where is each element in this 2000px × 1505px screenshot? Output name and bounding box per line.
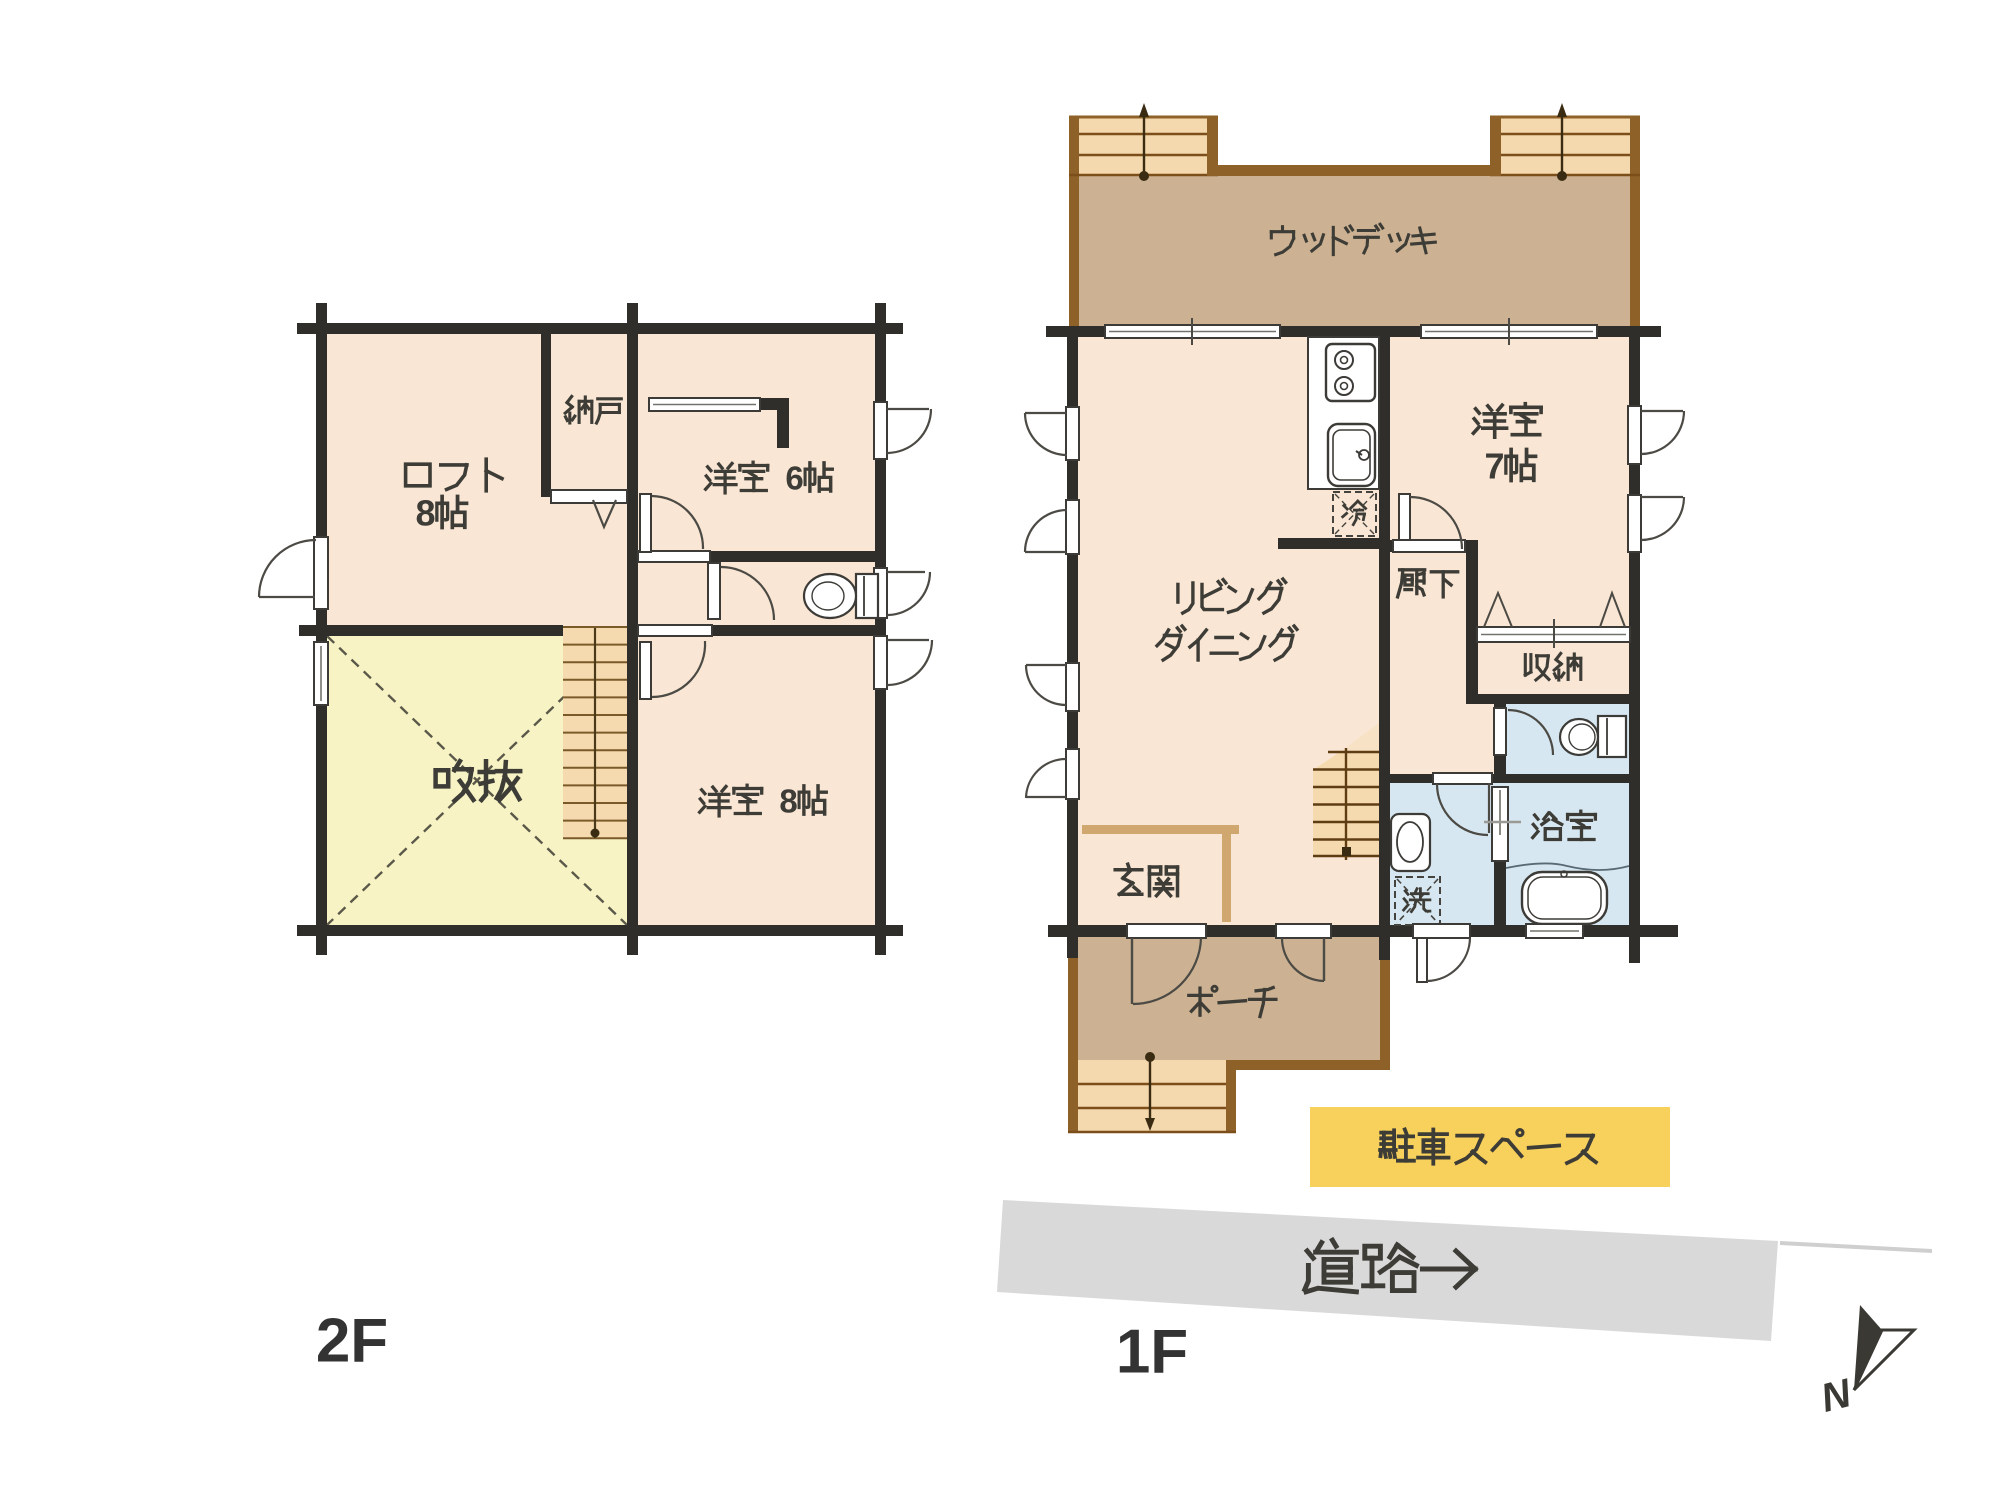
svg-text:帖: 帖 xyxy=(1502,446,1538,487)
svg-text:帖: 帖 xyxy=(433,493,469,534)
svg-text:帖: 帖 xyxy=(796,783,829,820)
svg-text:2F: 2F xyxy=(316,1307,388,1376)
svg-text:1F: 1F xyxy=(1116,1318,1188,1387)
svg-text:帖: 帖 xyxy=(802,460,835,497)
